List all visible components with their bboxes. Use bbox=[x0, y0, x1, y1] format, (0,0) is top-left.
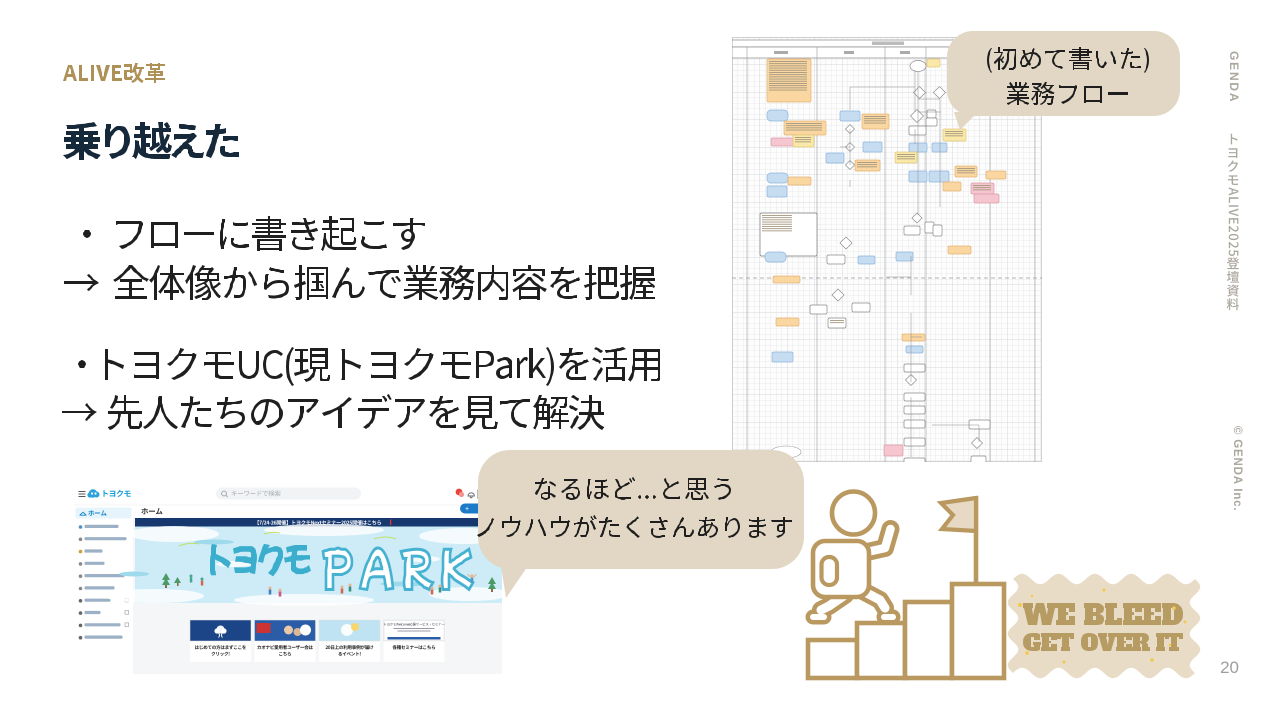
svg-text:+: + bbox=[465, 506, 469, 513]
